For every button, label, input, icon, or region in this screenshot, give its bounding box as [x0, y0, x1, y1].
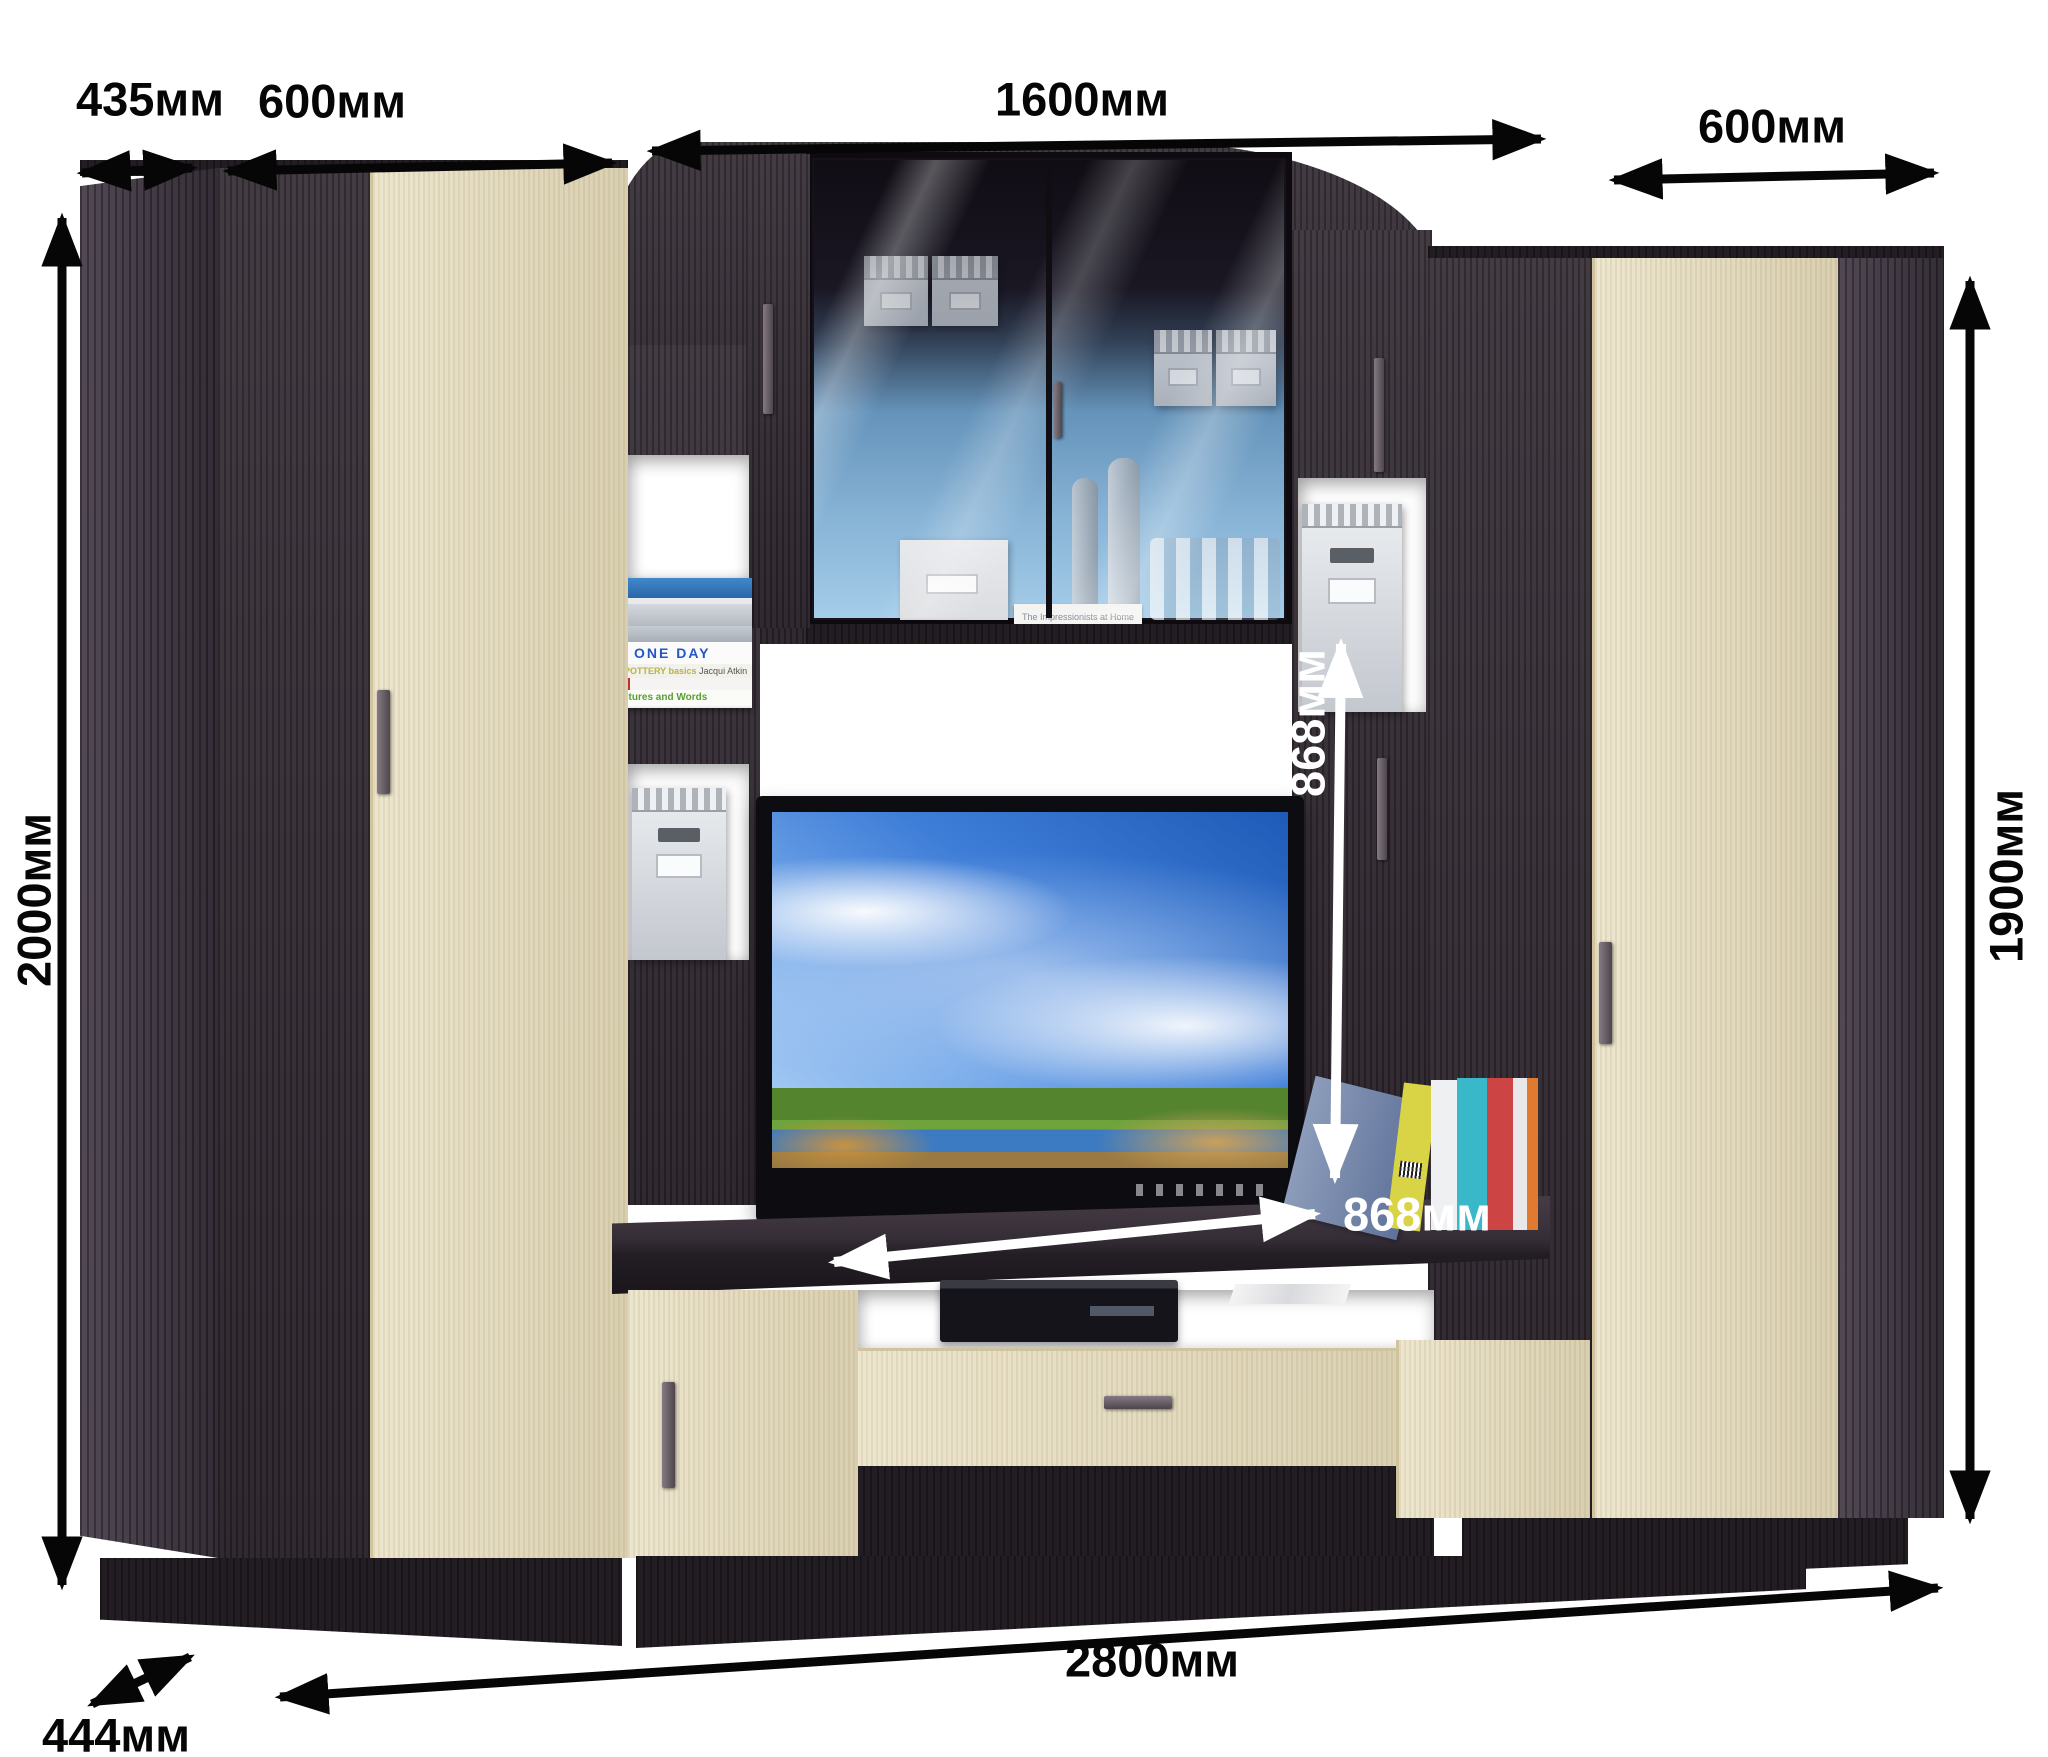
- label-435: 435мм: [76, 72, 224, 127]
- label-1600: 1600мм: [995, 72, 1169, 127]
- furniture-dimension-illustration: The Impressionists at Home ONE DAY POTTE…: [0, 0, 2048, 1757]
- arrow-600-left: [228, 163, 612, 171]
- label-444: 444мм: [42, 1708, 190, 1757]
- arrow-435: [82, 168, 192, 173]
- label-600-right: 600мм: [1698, 99, 1846, 154]
- label-1900: 1900мм: [1979, 789, 2034, 963]
- dimension-arrows: [0, 0, 2048, 1757]
- label-2000: 2000мм: [7, 813, 62, 987]
- arrow-600-right: [1614, 173, 1934, 180]
- arrow-1600: [652, 139, 1541, 151]
- arrow-444: [92, 1657, 190, 1704]
- label-868-horizontal: 868мм: [1343, 1187, 1491, 1242]
- label-868-vertical: 868мм: [1281, 649, 1336, 797]
- arrow-868-vertical: [1335, 644, 1341, 1178]
- arrow-868-horizontal: [834, 1214, 1315, 1262]
- label-600-left: 600мм: [258, 74, 406, 129]
- label-2800: 2800мм: [1065, 1633, 1239, 1688]
